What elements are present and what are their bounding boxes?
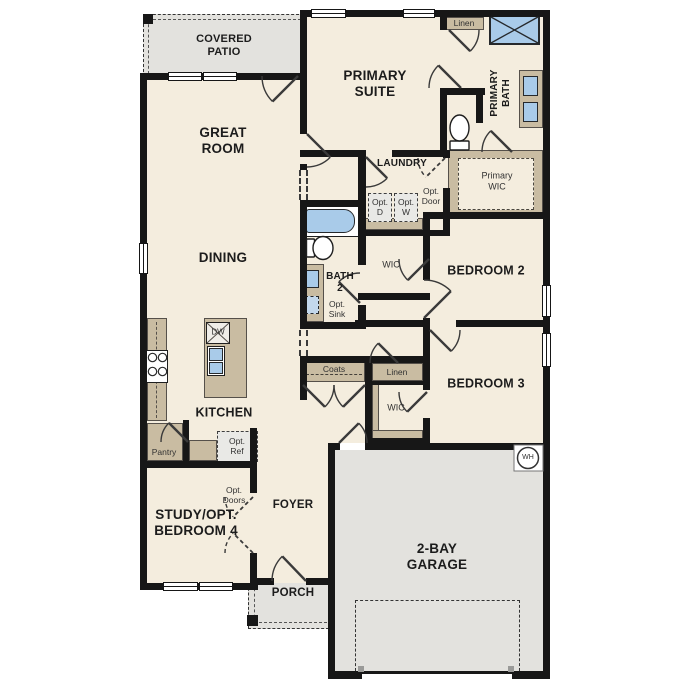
wall bbox=[306, 578, 330, 585]
opening-great-room-hall bbox=[299, 170, 308, 200]
opt-ref-label: Opt. Ref bbox=[229, 436, 245, 456]
bedroom2-label: BEDROOM 2 bbox=[447, 264, 525, 279]
wall bbox=[358, 293, 430, 300]
study-label: STUDY/OPT. BEDROOM 4 bbox=[154, 507, 238, 539]
wall bbox=[300, 200, 364, 207]
bedroom3-label: BEDROOM 3 bbox=[447, 377, 525, 392]
wic-bed3-label: WIC bbox=[387, 403, 405, 414]
opt-door-label: Opt. Door bbox=[422, 186, 440, 206]
window bbox=[542, 333, 551, 367]
wall bbox=[365, 356, 372, 444]
pantry-label: Pantry bbox=[152, 447, 177, 457]
primary-bath-label: PRIMARY BATH bbox=[489, 69, 513, 116]
opt-doors-label: Opt. Doors bbox=[223, 485, 246, 505]
bath2-label: BATH 2 bbox=[326, 271, 354, 295]
dishwasher-label: DW bbox=[211, 327, 224, 336]
wall bbox=[443, 150, 450, 158]
shower bbox=[489, 15, 540, 45]
opening-dining-hall bbox=[299, 330, 308, 356]
wall bbox=[358, 230, 450, 236]
floor-plan: COVERED PATIO GREAT ROOM DINING KITCHEN … bbox=[0, 0, 687, 687]
wall bbox=[365, 443, 550, 450]
window bbox=[311, 9, 346, 18]
wall bbox=[328, 443, 340, 450]
window bbox=[163, 582, 198, 591]
wall bbox=[250, 578, 274, 585]
entry-counter bbox=[189, 440, 217, 461]
bath2-opt-sink bbox=[305, 296, 319, 314]
wic-bed2-label: WIC bbox=[382, 260, 400, 271]
garage-door-header bbox=[362, 671, 512, 674]
wall bbox=[440, 88, 447, 150]
wall bbox=[300, 356, 425, 363]
water-heater-label: WH bbox=[522, 454, 534, 462]
covered-patio-label: COVERED PATIO bbox=[196, 33, 252, 59]
wall bbox=[456, 320, 543, 327]
wall bbox=[183, 420, 189, 461]
garage-door-jamb bbox=[358, 666, 364, 672]
window bbox=[403, 9, 435, 18]
island-sink-bottom bbox=[209, 362, 223, 374]
foyer-label: FOYER bbox=[273, 499, 314, 513]
wall bbox=[358, 150, 366, 265]
garage-label: 2-BAY GARAGE bbox=[407, 541, 467, 573]
primary-suite-label: PRIMARY SUITE bbox=[343, 68, 406, 100]
wall bbox=[423, 212, 543, 219]
primary-sink-2 bbox=[523, 102, 538, 122]
linen-bath-label: Linen bbox=[454, 18, 475, 28]
coats-label: Coats bbox=[323, 364, 345, 374]
wall bbox=[328, 671, 362, 679]
porch-label: PORCH bbox=[272, 587, 315, 601]
linen-hall-label: Linen bbox=[387, 367, 408, 377]
kitchen-label: KITCHEN bbox=[196, 406, 253, 421]
coats-shelf-dash bbox=[306, 374, 362, 376]
laundry-label: LAUNDRY bbox=[377, 158, 427, 170]
great-room-label: GREAT ROOM bbox=[199, 125, 246, 157]
patio-post bbox=[143, 14, 153, 24]
window bbox=[203, 72, 237, 81]
wall bbox=[355, 320, 428, 327]
wall bbox=[423, 212, 430, 280]
window bbox=[542, 285, 551, 317]
wall bbox=[370, 381, 425, 385]
wall bbox=[300, 200, 307, 329]
garage-door-dash bbox=[355, 600, 520, 671]
window bbox=[139, 243, 148, 274]
primary-wic-label: Primary WIC bbox=[482, 170, 513, 191]
opt-dryer-label: Opt. D bbox=[372, 197, 388, 217]
tub bbox=[306, 209, 355, 233]
stove bbox=[146, 350, 168, 383]
wall bbox=[440, 17, 447, 30]
bath2-sink bbox=[305, 270, 319, 288]
opt-washer-label: Opt. W bbox=[398, 197, 414, 217]
window bbox=[199, 582, 233, 591]
wall bbox=[300, 150, 366, 157]
island-sink-top bbox=[209, 348, 223, 361]
wall bbox=[300, 10, 307, 134]
dining-label: DINING bbox=[199, 250, 247, 266]
wall bbox=[392, 150, 448, 157]
primary-sink-1 bbox=[523, 76, 538, 96]
wall bbox=[365, 438, 425, 444]
wall bbox=[140, 461, 257, 468]
wall bbox=[476, 93, 483, 123]
porch-post bbox=[247, 615, 258, 626]
wall bbox=[328, 443, 335, 679]
wall bbox=[512, 671, 550, 679]
opt-sink-label: Opt. Sink bbox=[329, 299, 346, 319]
wall bbox=[140, 73, 147, 590]
window bbox=[168, 72, 202, 81]
wall bbox=[250, 428, 257, 493]
garage-door-jamb bbox=[508, 666, 514, 672]
wall bbox=[300, 322, 364, 329]
